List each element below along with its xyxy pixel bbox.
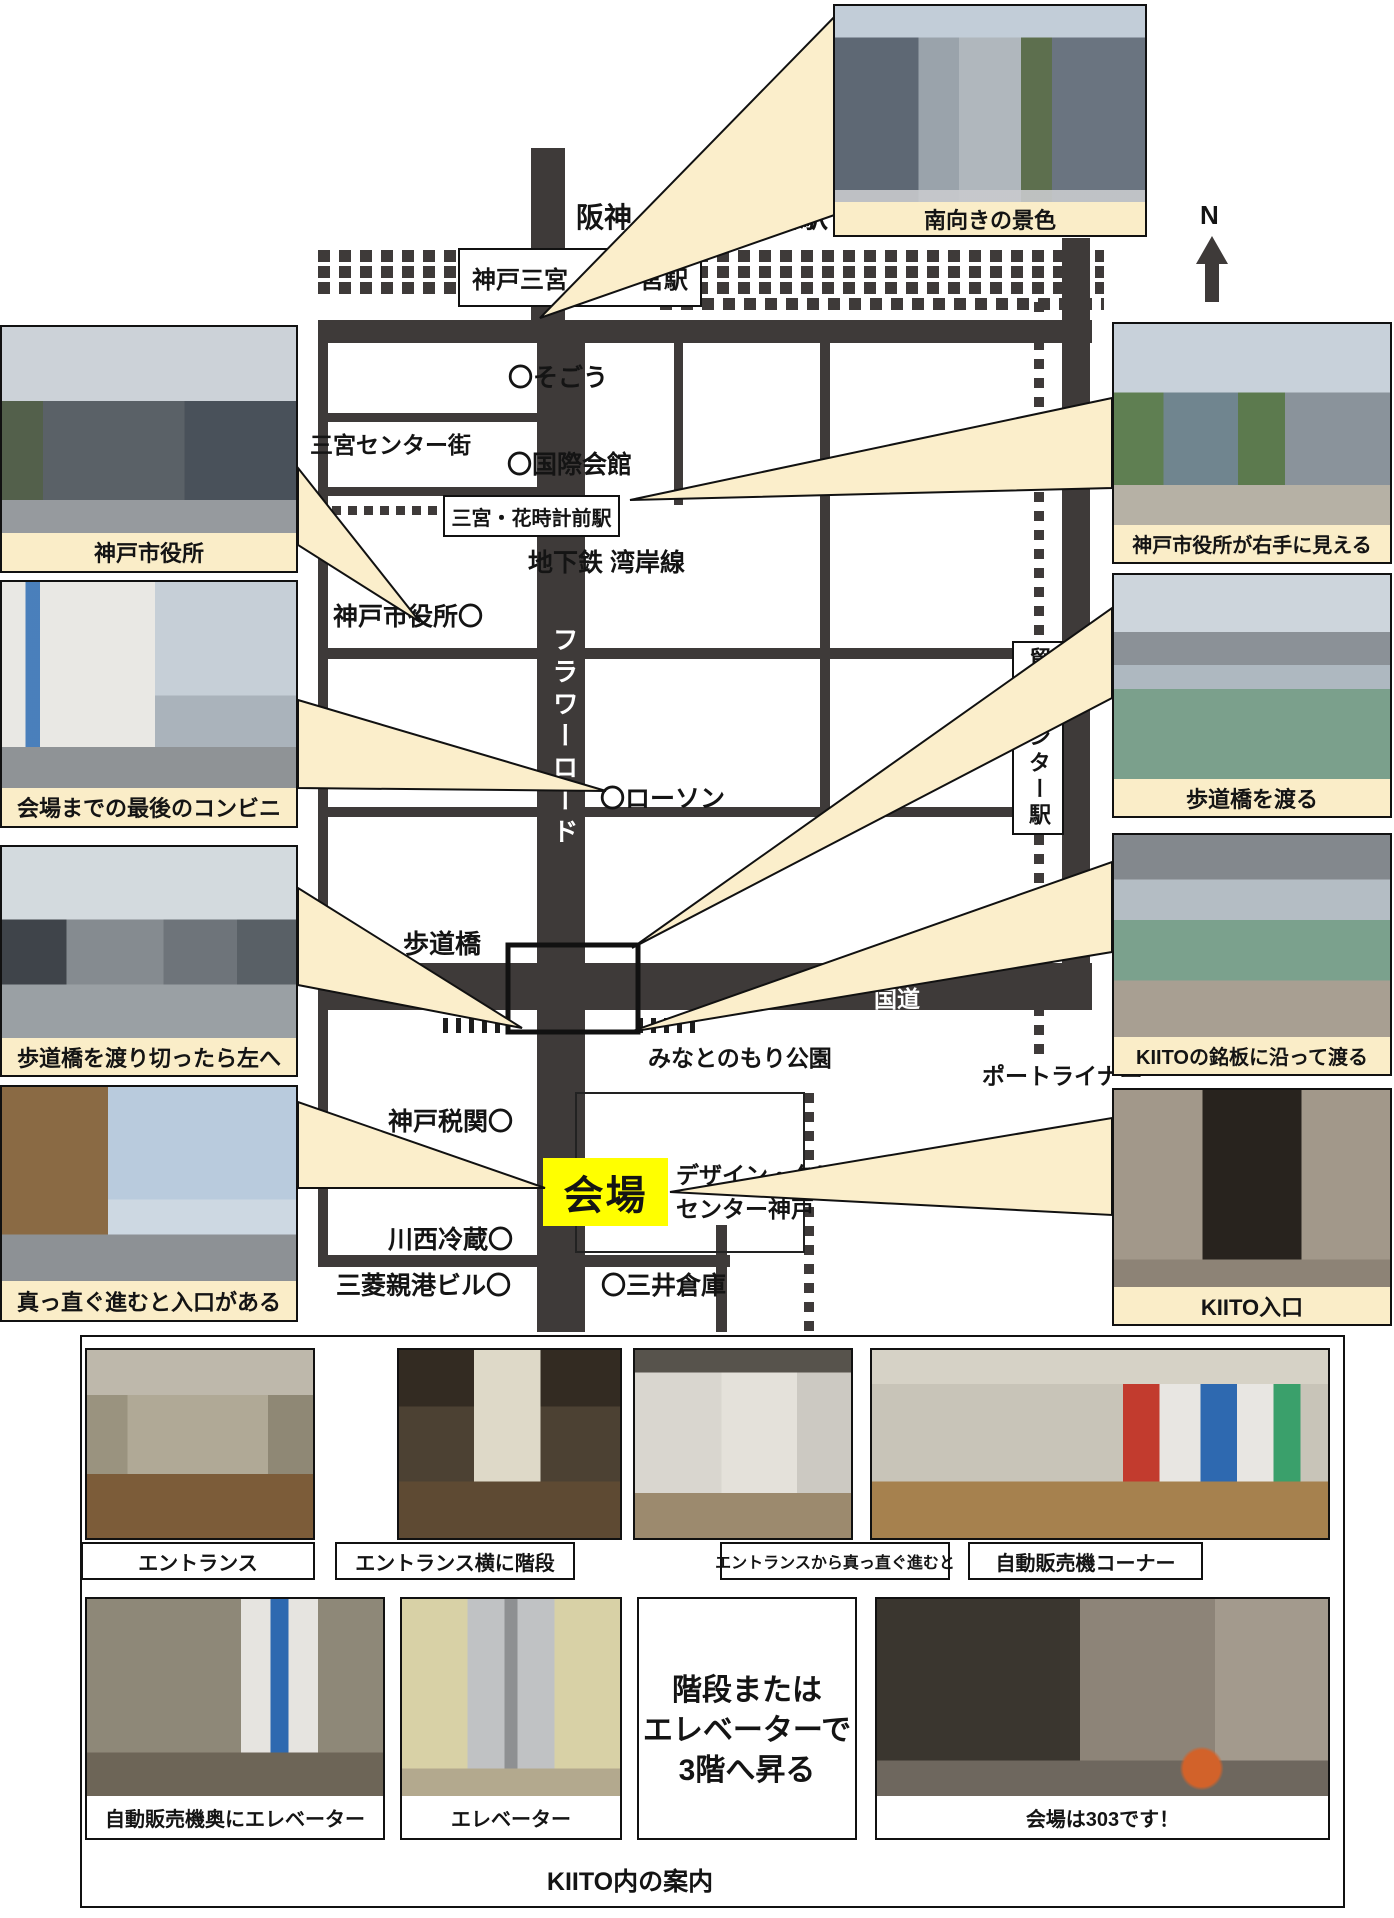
venue-highlight: 会場 [543,1158,668,1226]
label-city-hall: 神戸市役所〇 [333,597,483,633]
label-sogo: 〇そごう [508,358,608,394]
stairs-note-line2: エレベーターで [639,1711,855,1751]
photo-after-bridge-left-caption: 歩道橋を渡り切ったら左へ [2,1038,296,1075]
compass-north-arrow [1196,236,1228,302]
guide-caption-corridor: エントランスから真っ直ぐ進むと [720,1542,950,1580]
portliner-dotted-north-2 [1034,835,1044,1055]
photo-kiito-entrance: KIITO入口 [1112,1088,1392,1326]
photo-kiito-entrance-caption: KIITO入口 [1114,1287,1390,1324]
kiito-access-map: 阪神・阪急三ノ宮駅 〇そごう 三宮センター街 〇国際会館 地下鉄 湾岸線 神戸市… [0,0,1394,1918]
label-design-creative-line2: センター神戸 [676,1190,814,1224]
label-mitsubishi-shinko: 三菱親港ビル〇 [336,1266,511,1302]
label-kokusai-kaikan: 〇国際会館 [507,445,632,481]
road-mid-horizontal-1 [326,648,1064,659]
photo-city-hall-caption: 神戸市役所 [2,533,296,571]
guide-cell-vending-elevator: 自動販売機奥にエレベーター [85,1597,385,1840]
label-sannomiya-center-gai: 三宮センター街 [310,426,471,460]
label-kawanishi-reizo: 川西冷蔵〇 [388,1220,513,1256]
photo-kiito-entrance-image [1114,1090,1390,1287]
photo-straight-entrance: 真っ直ぐ進むと入口がある [0,1085,298,1322]
stairs-note-line1: 階段または [639,1671,855,1711]
compass-n-label: N [1200,200,1219,231]
railway-line-row2 [318,266,1104,278]
guide-cell-room303: 会場は303です！ [875,1597,1330,1840]
road-kokudo-wide [326,963,1092,1010]
guide-photo-vending-elevator [87,1599,383,1796]
photo-cross-bridge-caption: 歩道橋を渡る [1114,779,1390,816]
photo-cross-bridge: 歩道橋を渡る [1112,573,1392,818]
photo-meiban-image [1114,835,1390,1037]
guide-photo-room303 [877,1599,1328,1796]
guide-caption-stairs: エントランス横に階段 [335,1542,575,1580]
photo-city-hall-right: 神戸市役所が右手に見える [1112,322,1392,564]
photo-last-conbini: 会場までの最後のコンビニ [0,580,298,828]
station-box-boeki-center: 貿易センター駅 [1012,641,1064,835]
photo-cross-bridge-image [1114,575,1390,779]
photo-last-conbini-image [2,582,296,788]
label-mitsui-soko: 〇三井倉庫 [601,1266,726,1302]
subway-dotted-line [300,506,446,515]
photo-after-bridge-left-image [2,847,296,1038]
railway-line-row1 [318,250,1104,262]
photo-straight-entrance-image [2,1087,296,1281]
photo-city-hall-right-caption: 神戸市役所が右手に見える [1114,525,1390,562]
railway-line-row3 [318,282,1104,294]
road-center-gai-north [326,413,537,422]
portliner-dotted-north-1 [1034,302,1044,642]
photo-city-hall-image [2,327,296,533]
label-kobe-customs: 神戸税関〇 [388,1102,513,1138]
road-east-vertical-2 [674,343,683,505]
bridge-steps-left [443,1018,505,1033]
guide-caption-room303: 会場は303です！ [877,1796,1328,1838]
photo-city-hall: 神戸市役所 [0,325,298,573]
photo-south-view-caption: 南向きの景色 [835,202,1145,235]
guide-photo-elevator [402,1599,620,1796]
photo-last-conbini-caption: 会場までの最後のコンビニ [2,788,296,826]
photo-meiban-caption: KIITOの銘板に沿って渡る [1114,1037,1390,1074]
guide-cell-elevator: エレベーター [400,1597,622,1840]
guide-caption-vending-corner: 自動販売機コーナー [968,1542,1203,1580]
guide-caption-vending-elevator: 自動販売機奥にエレベーター [87,1796,383,1838]
station-box-hanadokei: 三宮・花時計前駅 [443,495,620,537]
guide-caption-elevator: エレベーター [402,1796,620,1838]
label-kokudo: 国道 [874,980,920,1014]
guide-photo-stairs [397,1348,622,1540]
photo-meiban: KIITOの銘板に沿って渡る [1112,833,1392,1076]
stairs-note-line3: 3階へ昇る [639,1751,855,1791]
photo-south-view: 南向きの景色 [833,4,1147,237]
label-lawson: 〇ローソン [600,779,725,815]
label-pedestrian-bridge: 歩道橋 [403,924,481,961]
guide-stairs-note: 階段または エレベーターで 3階へ昇る [637,1597,857,1840]
road-right-vertical [1062,238,1090,1010]
label-subway-line: 地下鉄 湾岸線 [528,543,685,579]
road-east-vertical-1 [820,343,830,815]
guide-footer-title: KIITO内の案内 [380,1862,880,1898]
label-flower-road: フラワーロード [546,626,583,850]
photo-after-bridge-left: 歩道橋を渡り切ったら左へ [0,845,298,1077]
label-minatonomori-park: みなとのもり公園 [648,1039,832,1073]
photo-city-hall-right-image [1114,324,1390,525]
guide-photo-corridor [633,1348,853,1540]
road-top-horizontal [326,320,1092,343]
guide-caption-entrance: エントランス [81,1542,315,1580]
road-left-vertical [318,320,328,1267]
station-box-sannomiya: 神戸三宮／三ノ宮駅 [458,248,702,307]
label-design-creative-line1: デザイン・クリエイティブ [676,1156,950,1190]
photo-south-view-image [835,6,1145,202]
guide-photo-entrance [85,1348,315,1540]
guide-photo-vending-corner [870,1348,1330,1540]
label-hanshin-hankyu-station: 阪神・阪急三ノ宮駅 [576,196,828,236]
bridge-steps-right [638,1018,700,1033]
photo-straight-entrance-caption: 真っ直ぐ進むと入口がある [2,1281,296,1320]
